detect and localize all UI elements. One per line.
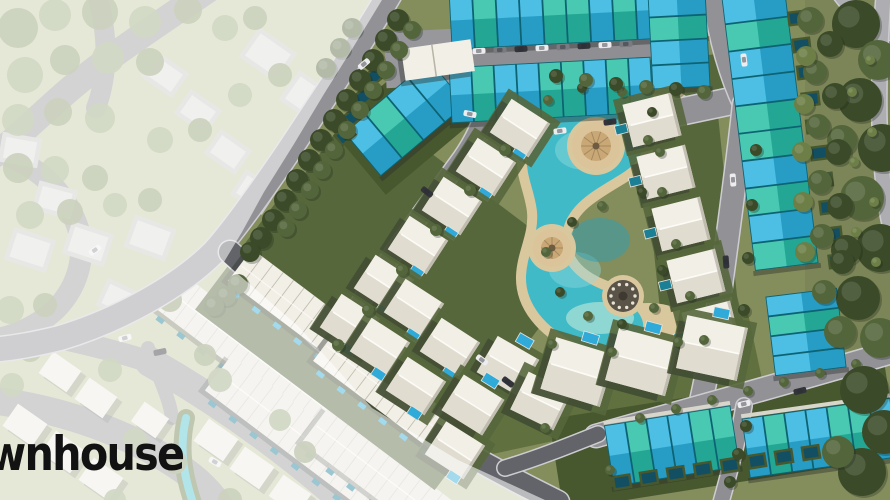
tree-light — [813, 227, 824, 238]
tree-light — [780, 378, 785, 383]
block-c-unit-shade — [760, 45, 794, 74]
block-c-unit-shade — [780, 209, 814, 238]
tree-light — [339, 92, 349, 102]
block-e-unit-light — [827, 405, 850, 437]
block-b-north-unit-light — [612, 0, 635, 12]
tree-light — [825, 86, 837, 98]
tree-light — [686, 292, 691, 297]
masterplan-image: wnhouse — [0, 0, 890, 500]
block-b-east-unit-light — [650, 17, 679, 41]
tree-light — [809, 117, 820, 128]
tree-light — [542, 248, 547, 253]
tree-light — [872, 258, 877, 263]
block-c-unit-light — [722, 0, 756, 23]
tree-light — [315, 163, 323, 171]
deck-seat — [618, 283, 621, 286]
tree-light — [848, 88, 853, 93]
tree-light — [279, 221, 287, 229]
block-b-north-unit-light — [496, 0, 519, 18]
tree-light — [650, 304, 655, 309]
block-c-unit-shade — [763, 72, 797, 101]
block-b-north-unit-shade — [614, 11, 637, 40]
tree-light — [656, 148, 661, 153]
tree-light — [301, 152, 311, 162]
parked-car-glass — [518, 47, 524, 51]
car — [730, 173, 737, 186]
tree-light — [850, 158, 855, 163]
tree-light — [672, 405, 677, 410]
tree-light — [364, 306, 369, 311]
deck-seat — [631, 287, 634, 290]
tree-light — [641, 82, 647, 88]
block-c-unit-light — [726, 21, 760, 50]
tree-light — [865, 323, 883, 341]
tree-light — [734, 450, 739, 455]
block-b-north-unit-shade — [544, 15, 567, 44]
tree-light — [833, 253, 844, 264]
car — [723, 255, 730, 268]
tree-light — [277, 192, 287, 202]
tree-light — [289, 172, 299, 182]
tree-light — [744, 254, 749, 259]
tree-light — [828, 142, 840, 154]
tree-light — [501, 146, 506, 151]
block-c-unit-light — [743, 158, 777, 187]
parked-car-glass — [581, 44, 587, 48]
tree-light — [658, 266, 663, 271]
block-b-north-unit-shade — [521, 16, 544, 45]
block-b-north-unit-light — [589, 0, 612, 13]
tree-light — [366, 83, 374, 91]
tree-light — [826, 440, 840, 454]
tree-light — [379, 63, 387, 71]
car-glass — [607, 120, 613, 125]
tree-light — [700, 336, 705, 341]
deck-seat — [618, 306, 621, 309]
block-b-north-unit-shade — [591, 12, 614, 41]
deck-seat — [612, 301, 615, 304]
tree-light — [796, 195, 805, 204]
parked-car — [556, 44, 569, 51]
block-b-north-unit-light — [519, 0, 542, 17]
deck-core — [593, 143, 600, 150]
block-b-east-unit-shade — [677, 0, 706, 15]
tree-light — [816, 369, 821, 374]
block-b-east-unit-shade — [679, 39, 708, 63]
tree-light — [352, 72, 362, 82]
tree-light — [584, 312, 589, 317]
block-b-south-unit-light — [472, 66, 494, 94]
tree-light — [674, 338, 679, 343]
tree-light — [752, 146, 757, 151]
tree-light — [726, 478, 731, 483]
tree-light — [544, 96, 549, 101]
tree-light — [636, 414, 641, 419]
parked-car — [598, 42, 611, 49]
car-glass — [557, 129, 563, 134]
tree-light — [326, 112, 336, 122]
tree-light — [606, 466, 611, 471]
block-b-north-unit-light — [543, 0, 566, 16]
tree-light — [334, 341, 339, 346]
block-b-south-unit-shade — [586, 87, 608, 115]
tree-light — [568, 218, 573, 223]
tree-light — [852, 360, 857, 365]
block-b-south-unit-shade — [451, 94, 473, 122]
tree-light — [828, 320, 842, 334]
block-b-north-unit-shade — [567, 13, 590, 42]
masterplan-render — [0, 0, 890, 500]
parked-car-glass — [602, 43, 608, 47]
block-b-south-unit-light — [517, 64, 539, 92]
parked-car-glass — [497, 48, 503, 52]
parked-car — [514, 46, 527, 53]
tree-light — [303, 183, 311, 191]
block-c-unit-light — [733, 76, 767, 105]
block-b-north-unit-light — [566, 0, 589, 15]
tree-light — [390, 12, 400, 22]
block-e-unit-light — [806, 408, 829, 440]
tree-light — [708, 396, 713, 401]
deck-seat — [633, 294, 636, 297]
tree-light — [800, 10, 812, 22]
tree-light — [820, 34, 832, 46]
block-b-north-unit-shade — [474, 18, 497, 47]
parked-car — [577, 43, 590, 50]
tree-light — [798, 245, 807, 254]
parked-car — [619, 41, 632, 48]
tree-light — [265, 212, 275, 222]
tree-light — [815, 283, 826, 294]
tree-light — [868, 416, 888, 436]
tree-light — [581, 75, 587, 81]
tree-light — [862, 230, 884, 252]
tree-light — [466, 186, 471, 191]
caption-text: wnhouse — [0, 431, 183, 478]
block-b-east-unit-shade — [680, 63, 709, 87]
deck-seat — [625, 283, 628, 286]
block-e-unit-light — [764, 414, 787, 446]
tree-light — [846, 372, 868, 394]
block-e-unit-light — [785, 411, 808, 443]
deck-seat — [609, 294, 612, 297]
block-c-unit-light — [749, 213, 783, 242]
tree-light — [551, 71, 557, 77]
fire-pit — [619, 292, 628, 301]
tree-light — [868, 128, 873, 133]
tree-light — [598, 202, 603, 207]
tree-light — [548, 340, 553, 345]
block-b-east-unit-shade — [678, 15, 707, 39]
car-glass — [742, 57, 747, 63]
tree-light — [291, 203, 299, 211]
deck-seat — [625, 306, 628, 309]
tree-light — [253, 230, 263, 240]
block-c-unit-light — [753, 240, 787, 269]
tree-light — [866, 56, 871, 61]
tree-light — [644, 136, 649, 141]
tree-light — [353, 103, 361, 111]
tree-light — [327, 143, 335, 151]
block-b-north-unit-light — [473, 0, 496, 19]
deck-seat — [631, 301, 634, 304]
tree-light — [830, 196, 842, 208]
car-glass — [724, 259, 728, 265]
block-b-north-unit-shade — [498, 17, 521, 46]
tree-light — [838, 6, 860, 28]
tree-light — [811, 173, 822, 184]
tree-light — [378, 32, 388, 42]
tree-light — [744, 387, 749, 392]
parked-car-glass — [623, 42, 629, 46]
parked-car — [493, 47, 506, 54]
tree-light — [842, 282, 862, 302]
tree-light — [852, 228, 857, 233]
block-b-east-unit-light — [648, 0, 677, 17]
parked-car-glass — [539, 46, 545, 50]
water-tone — [570, 218, 630, 262]
parked-car-glass — [560, 45, 566, 49]
tree-light — [672, 240, 677, 245]
tree-light — [671, 84, 677, 90]
tree-light — [243, 245, 252, 254]
tree-light — [541, 424, 546, 429]
car-glass — [731, 177, 735, 183]
tree-light — [799, 49, 808, 58]
tree-light — [742, 422, 747, 427]
block-b-north-unit-light — [450, 0, 473, 21]
tree-light — [340, 123, 348, 131]
block-c-unit-shade — [757, 18, 791, 47]
tree-light — [313, 132, 323, 142]
tree-light — [608, 348, 613, 353]
tree-light — [556, 288, 561, 293]
tree-light — [658, 188, 663, 193]
tree-light — [797, 97, 806, 106]
parked-car-glass — [476, 49, 482, 53]
tree-light — [740, 306, 745, 311]
plunge-pool — [812, 147, 827, 159]
tree-light — [748, 201, 753, 206]
block-b-east — [646, 0, 713, 95]
tree-light — [648, 108, 653, 113]
tree-light — [699, 87, 705, 93]
deck-seat — [612, 287, 615, 290]
block-c-unit-light — [736, 103, 770, 132]
tree-light — [398, 266, 403, 271]
parked-car — [535, 45, 548, 52]
tree-light — [618, 320, 623, 325]
block-b-south-unit-light — [494, 65, 516, 93]
tree-light — [392, 43, 400, 51]
tree-light — [638, 188, 643, 193]
tree-light — [405, 23, 413, 31]
tree-light — [432, 226, 437, 231]
tree-light — [795, 145, 804, 154]
tree-light — [611, 79, 617, 85]
tree-light — [870, 198, 875, 203]
parked-car — [472, 48, 485, 55]
block-b-east-unit-light — [651, 41, 680, 65]
